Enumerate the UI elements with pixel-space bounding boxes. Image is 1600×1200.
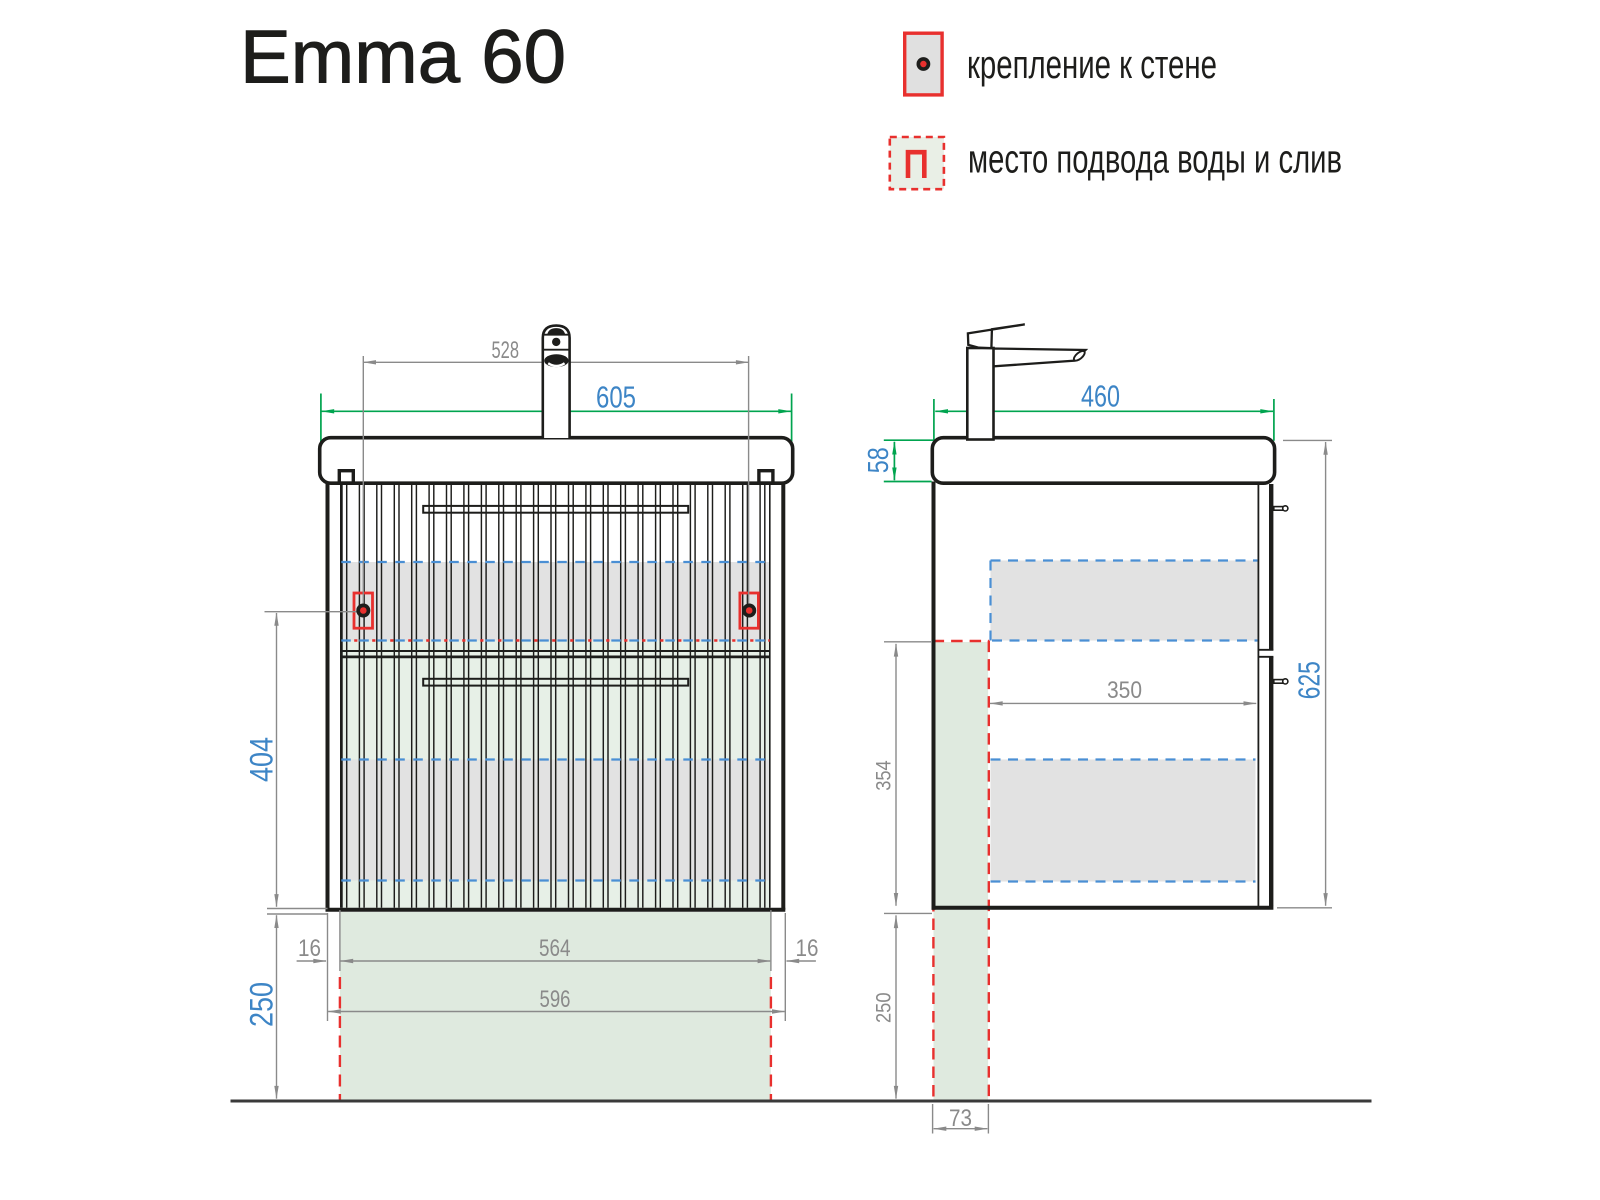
svg-text:350: 350: [1107, 677, 1142, 704]
svg-text:крепление к стене: крепление к стене: [967, 43, 1217, 87]
svg-text:250: 250: [872, 992, 896, 1023]
svg-text:460: 460: [1081, 379, 1120, 414]
svg-text:место подвода воды и слив: место подвода воды и слив: [968, 138, 1342, 182]
svg-text:404: 404: [244, 737, 280, 782]
svg-text:73: 73: [949, 1105, 972, 1132]
svg-text:596: 596: [540, 986, 571, 1013]
svg-text:16: 16: [796, 935, 819, 962]
svg-text:528: 528: [492, 337, 520, 364]
svg-text:605: 605: [596, 380, 636, 415]
svg-text:58: 58: [863, 447, 895, 473]
svg-text:250: 250: [244, 982, 280, 1027]
svg-text:Emma 60: Emma 60: [240, 15, 566, 99]
svg-text:625: 625: [1292, 661, 1327, 699]
svg-text:564: 564: [539, 935, 571, 962]
svg-text:354: 354: [872, 760, 896, 791]
svg-text:16: 16: [298, 935, 321, 962]
